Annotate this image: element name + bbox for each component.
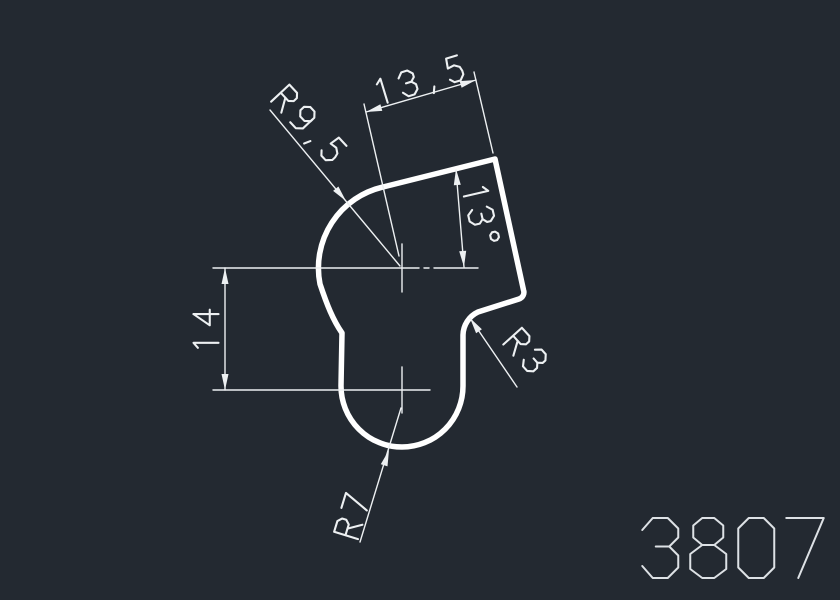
dim-width-ext-left — [364, 104, 399, 256]
glyph-stroke — [642, 518, 678, 547]
radius-notch-label — [503, 328, 548, 374]
glyph-stroke — [341, 493, 369, 515]
glyph-stroke — [297, 104, 317, 124]
glyph-stroke — [642, 547, 678, 579]
arrowhead — [366, 104, 382, 112]
cad-drawing — [0, 0, 840, 600]
part-number — [642, 518, 824, 578]
profile-outline — [318, 159, 523, 447]
arrowhead — [459, 251, 466, 267]
dim-width-label — [376, 55, 466, 108]
angle-label — [463, 186, 500, 245]
arrowhead — [222, 374, 229, 390]
dim-height-label — [194, 310, 219, 348]
glyph-stroke — [319, 136, 347, 164]
glyph-stroke — [530, 346, 549, 365]
glyph-stroke — [194, 310, 210, 326]
glyph-stroke — [786, 518, 824, 578]
angle-dim — [454, 169, 500, 267]
glyph-stroke — [194, 343, 219, 348]
glyph-stroke — [347, 521, 362, 533]
arrowhead — [460, 80, 476, 88]
radius-leader-bottom — [334, 408, 401, 542]
glyph-stroke — [520, 354, 540, 374]
dim-width — [364, 55, 493, 256]
glyph-stroke — [444, 55, 465, 83]
center-lines — [213, 244, 478, 413]
cad-viewport — [0, 0, 840, 600]
dim-width-ext-right — [474, 72, 493, 153]
glyph-stroke — [738, 518, 774, 578]
glyph-stroke — [463, 186, 488, 196]
arrowhead — [222, 268, 229, 284]
glyph-stroke — [693, 518, 723, 545]
glyph-stroke — [467, 208, 483, 226]
leader-r7-line — [360, 408, 401, 542]
dim-height — [194, 268, 229, 390]
glyph-stroke — [376, 79, 388, 104]
arrowhead — [381, 450, 389, 466]
radius-leader-notch — [470, 318, 549, 387]
glyph-stroke — [304, 139, 310, 145]
arrowhead — [470, 318, 482, 333]
glyph-stroke — [690, 545, 726, 578]
radius-bottom-label — [334, 493, 370, 539]
glyph-stroke — [490, 231, 500, 241]
